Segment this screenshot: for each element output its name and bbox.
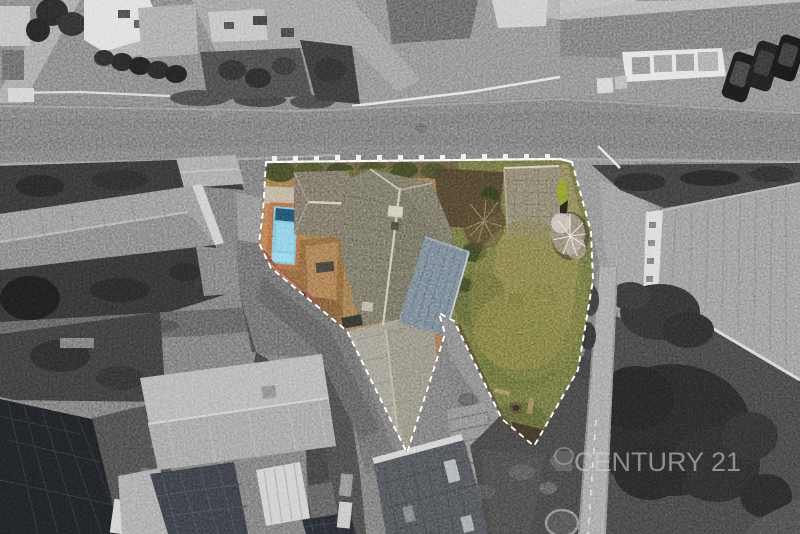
svg-text:CENTURY 21: CENTURY 21: [574, 447, 741, 477]
